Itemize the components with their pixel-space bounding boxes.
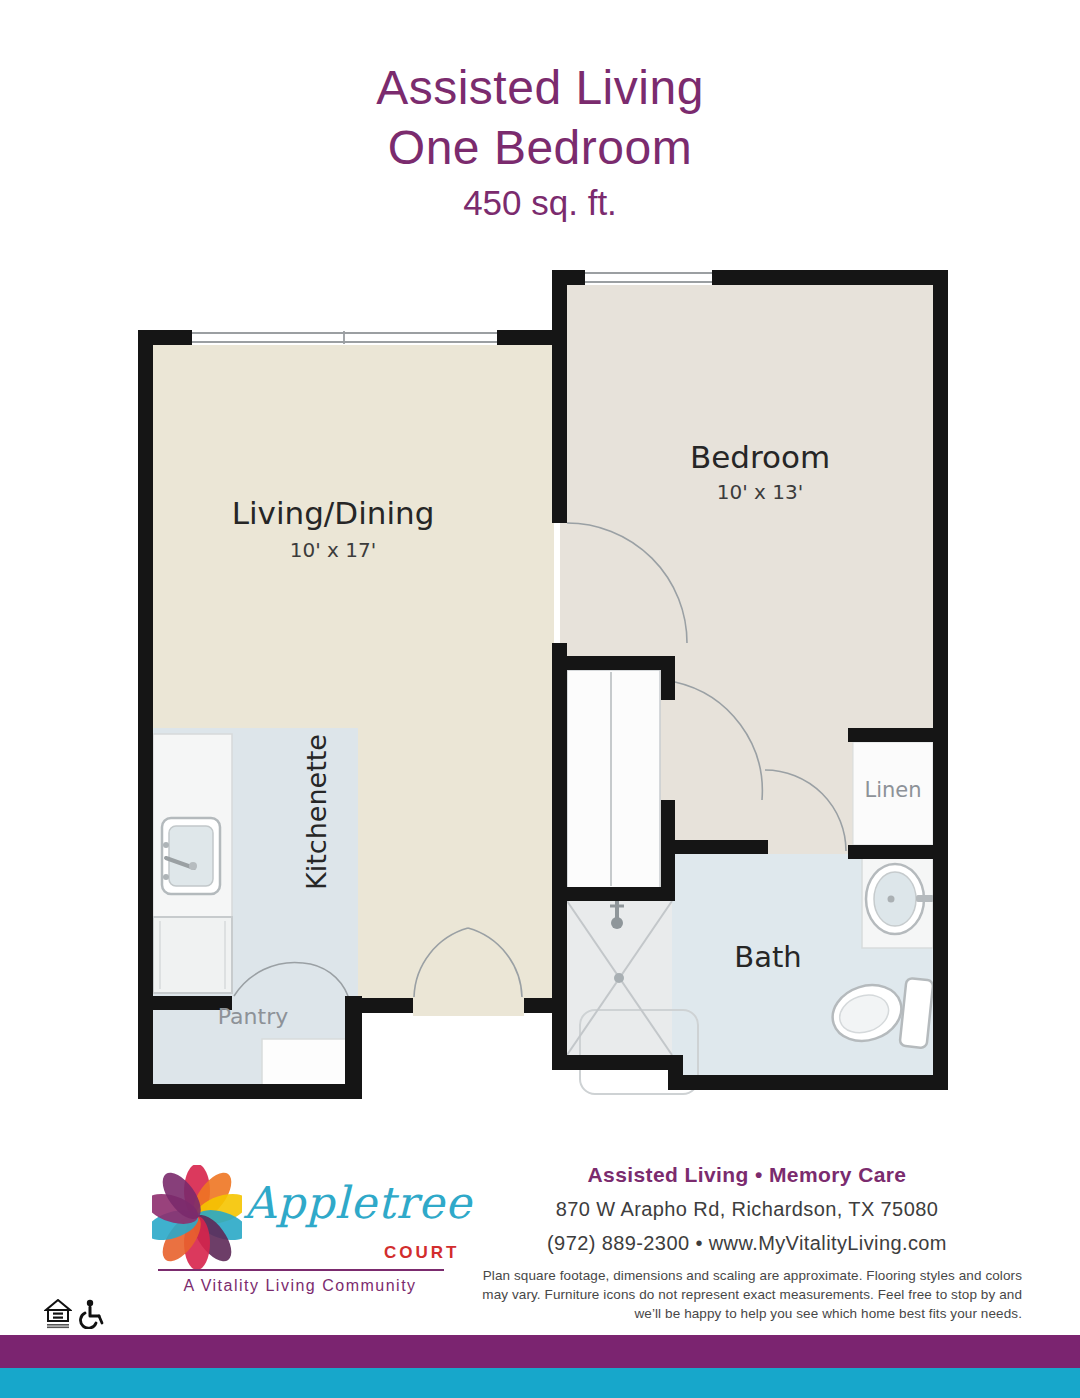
compliance-icons	[44, 1299, 114, 1331]
brand-suffix: COURT	[384, 1243, 459, 1263]
bedroom-window	[585, 270, 712, 285]
living-dims: 10' x 17'	[290, 538, 376, 562]
bath-label: Bath	[734, 940, 801, 974]
brand-rule	[158, 1269, 444, 1271]
bathroom-vanity	[862, 852, 934, 948]
services-line: Assisted Living • Memory Care	[468, 1163, 1026, 1187]
flyer-page: Assisted Living One Bedroom 450 sq. ft.	[0, 0, 1080, 1398]
contact-block: Assisted Living • Memory Care 870 W Arap…	[468, 1163, 1026, 1255]
footer-bar-purple	[0, 1335, 1080, 1368]
pantry-shelf	[262, 1039, 359, 1086]
bedroom-label: Bedroom	[690, 439, 830, 475]
address-line: 870 W Arapho Rd, Richardson, TX 75080	[468, 1198, 1026, 1221]
sink-faucet	[916, 895, 934, 902]
refrigerator	[153, 917, 232, 993]
equal-housing-icon	[44, 1299, 72, 1329]
living-label: Living/Dining	[232, 495, 435, 531]
entry-threshold	[413, 996, 524, 1016]
kitchen-sink	[162, 818, 220, 894]
disclaimer-text: Plan square footage, dimensions and scal…	[470, 1266, 1022, 1323]
brand-logo: Appletree COURT A Vitality Living Commun…	[150, 1163, 472, 1303]
brand-tagline: A Vitality Living Community	[150, 1277, 450, 1295]
wheelchair-accessible-icon	[78, 1299, 104, 1329]
brand-name: Appletree	[244, 1177, 472, 1228]
bedroom-dims: 10' x 13'	[717, 480, 803, 504]
flower-logo-icon	[152, 1165, 242, 1270]
kitchenette-label: Kitchenette	[301, 734, 332, 890]
phone-web-line: (972) 889-2300 • www.MyVitalityLiving.co…	[468, 1232, 1026, 1255]
bedroom-closet	[567, 670, 660, 888]
living-window	[192, 330, 497, 345]
linen-label: Linen	[864, 778, 921, 802]
footer-bar-teal	[0, 1368, 1080, 1398]
shower-drain	[614, 973, 624, 983]
pantry-label: Pantry	[218, 1004, 288, 1029]
